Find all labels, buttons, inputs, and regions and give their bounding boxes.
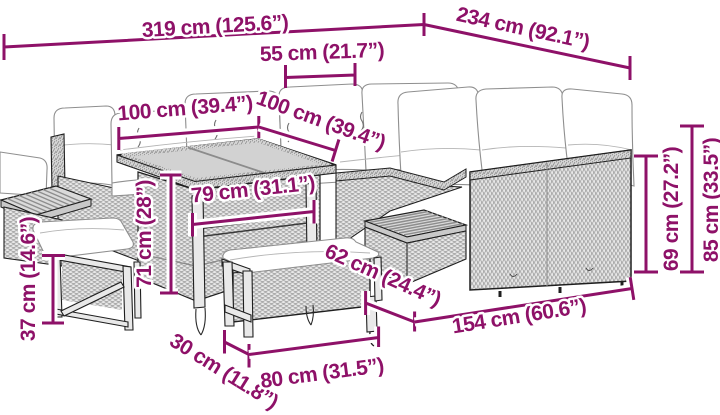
svg-text:71 cm (28”): 71 cm (28”) (133, 180, 156, 288)
svg-text:55 cm (21.7”): 55 cm (21.7”) (260, 39, 385, 66)
svg-text:37 cm (14.6”): 37 cm (14.6”) (17, 217, 40, 341)
svg-text:69 cm (27.2”): 69 cm (27.2”) (660, 147, 683, 271)
svg-text:85 cm (33.5”): 85 cm (33.5”) (700, 138, 720, 262)
